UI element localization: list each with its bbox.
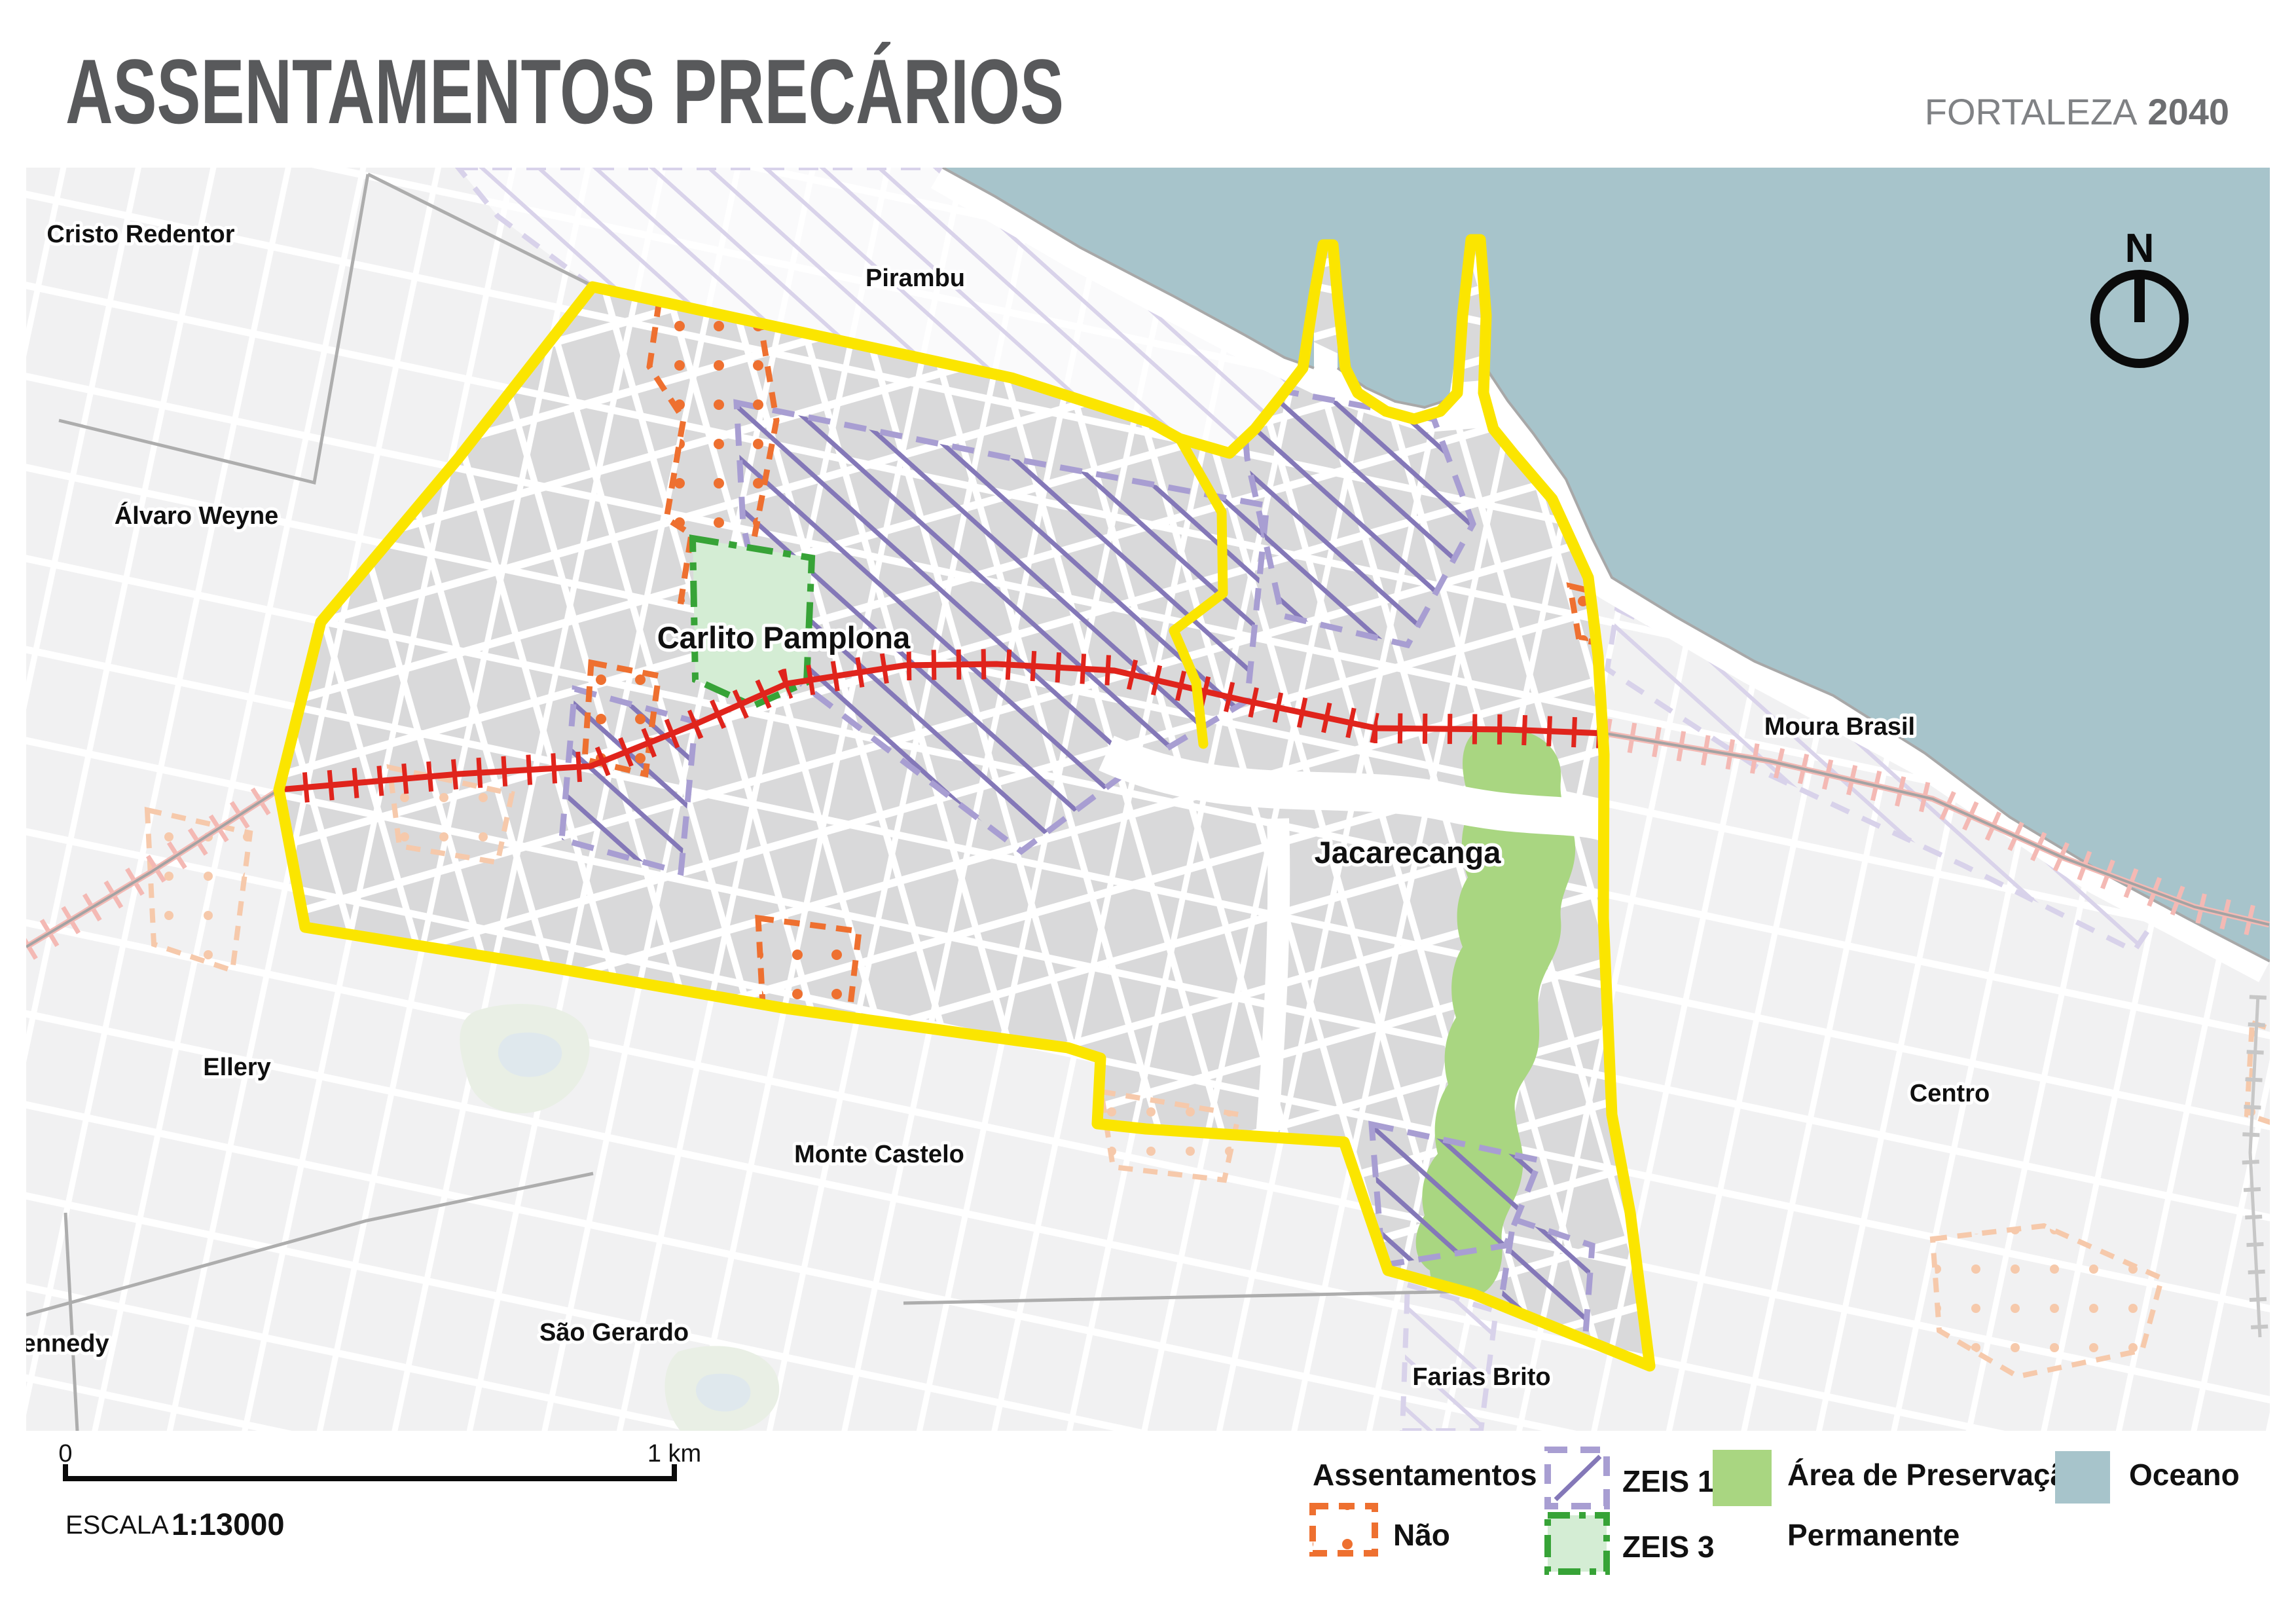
oceano-swatch bbox=[2055, 1451, 2110, 1504]
svg-text:Não: Não bbox=[1393, 1518, 1450, 1552]
district-label-alvaro-weyne: Álvaro Weyne bbox=[115, 501, 279, 530]
district-label-sao-gerardo: São Gerardo bbox=[539, 1319, 689, 1346]
svg-text:ZEIS 1: ZEIS 1 bbox=[1622, 1464, 1715, 1498]
district-label-carlito-pamplona: Carlito Pamplona bbox=[657, 620, 911, 655]
district-label-ellery: Ellery bbox=[203, 1054, 271, 1081]
brand: FORTALEZA2040 bbox=[1925, 91, 2229, 132]
district-label-jacarecanga: Jacarecanga bbox=[1315, 835, 1502, 870]
svg-text:ZEIS 3: ZEIS 3 bbox=[1622, 1530, 1715, 1564]
scale-one-km: 1 km bbox=[647, 1440, 701, 1467]
brand-year: 2040 bbox=[2147, 91, 2229, 132]
district-label-monte-castelo: Monte Castelo bbox=[794, 1141, 964, 1168]
svg-text:Permanente: Permanente bbox=[1787, 1518, 1959, 1552]
svg-text:Assentamentos: Assentamentos bbox=[1313, 1458, 1537, 1492]
svg-text:Área de Preservação: Área de Preservação bbox=[1787, 1458, 2085, 1492]
district-label-pirambu: Pirambu bbox=[866, 265, 965, 292]
zeis3-swatch bbox=[1548, 1515, 1607, 1572]
district-label-cristo-redentor: Cristo Redentor bbox=[46, 221, 234, 248]
map-poster: Cristo Redentor Pirambu Álvaro Weyne Car… bbox=[0, 0, 2296, 1624]
nao-swatch bbox=[1313, 1506, 1375, 1553]
district-label-moura-brasil: Moura Brasil bbox=[1764, 713, 1915, 741]
district-label-farias-brito: Farias Brito bbox=[1412, 1363, 1550, 1391]
brand-city: FORTALEZA bbox=[1925, 91, 2138, 132]
legend-item-assentamentos: Assentamentos bbox=[1313, 1458, 1537, 1492]
scale-escala-label: ESCALA bbox=[65, 1511, 169, 1540]
preservation-swatch bbox=[1713, 1450, 1772, 1506]
district-label-centro: Centro bbox=[1910, 1080, 1990, 1107]
scale-escala-value: 1:13000 bbox=[172, 1507, 285, 1541]
north-label: N bbox=[2125, 226, 2155, 271]
map-canvas: Cristo Redentor Pirambu Álvaro Weyne Car… bbox=[0, 168, 2293, 1431]
page-title: ASSENTAMENTOS PRECÁRIOS bbox=[65, 40, 1064, 143]
svg-text:Oceano: Oceano bbox=[2129, 1458, 2240, 1492]
scale-zero: 0 bbox=[58, 1440, 72, 1467]
nao-zone bbox=[585, 663, 659, 774]
